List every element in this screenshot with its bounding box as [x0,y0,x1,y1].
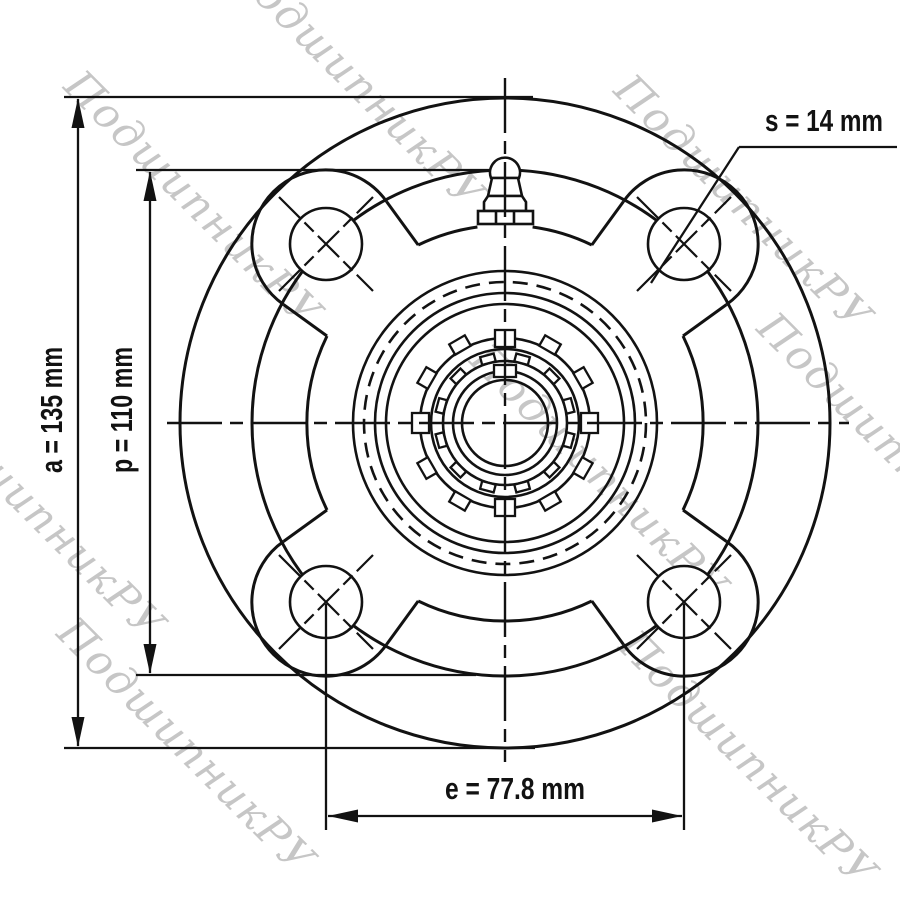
collar-tab [449,335,471,354]
collar-tab [449,491,471,510]
dimension-p-label: p = 110 mm [104,347,139,473]
waist-arc-north-left [418,227,477,245]
collar-tab [539,491,561,510]
watermark-text: ПодшипникРУ [47,607,325,885]
collar-tab [417,457,436,479]
waist-arc-north-right [533,227,592,245]
technical-drawing: ПодшипникРУ ПодшипникРУ ПодшипникРУ Подш… [0,0,900,900]
collar-tab [417,367,436,389]
lobe-connector [387,202,419,245]
watermark-text: ПодшипникРУ [54,60,332,338]
lobe-connector [387,601,419,644]
collar-tab [573,367,592,389]
arrowhead-right [652,810,682,823]
dimension-e-label: e = 77.8 mm [445,771,585,806]
arrowhead-down [72,717,85,747]
arrowhead-left [328,810,358,823]
dimension-s-label: s = 14 mm [765,103,883,138]
lobe-connector [683,305,726,336]
dimension-a-label: a = 135 mm [34,347,69,473]
lobe-connector [592,202,624,245]
lobe-connector [284,510,327,541]
watermark-text: ПодшипникРУ [609,620,887,898]
collar-tab [539,335,561,354]
watermark-text: ПодшипникРУ [747,302,900,580]
watermark-text: ПодшипникРУ [217,0,495,220]
lobe-connector [592,601,624,644]
